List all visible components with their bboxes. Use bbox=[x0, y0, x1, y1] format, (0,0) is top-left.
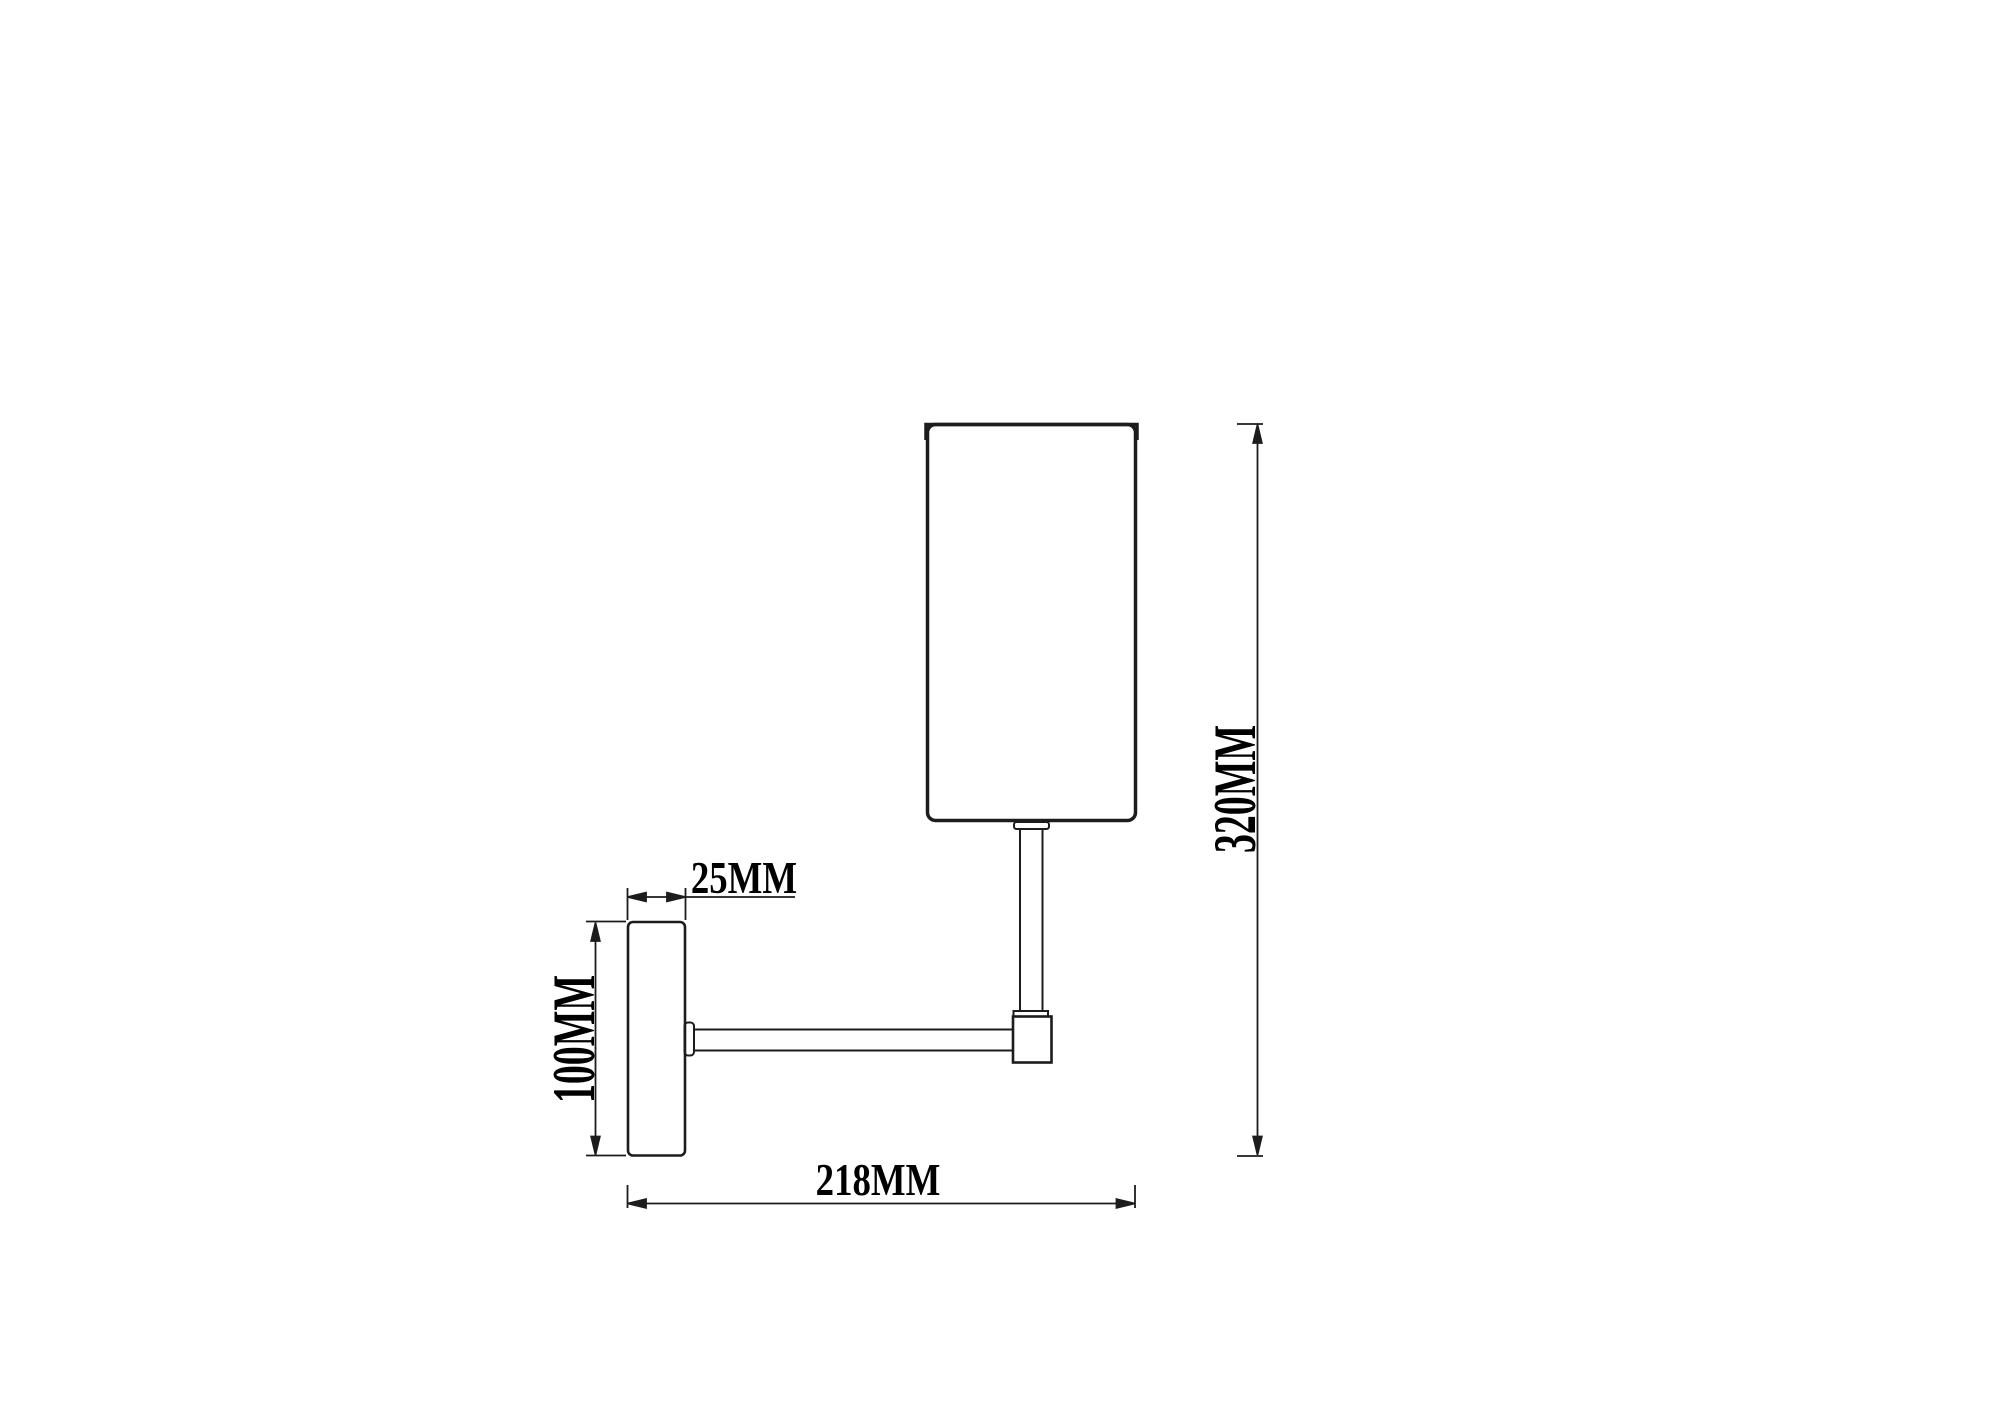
label-total-height: 320MM bbox=[1204, 727, 1266, 853]
label-plate-height: 100MM bbox=[543, 977, 605, 1103]
lamp-line-drawing bbox=[0, 0, 2000, 1413]
joint-block bbox=[1013, 1017, 1052, 1063]
arrowhead-left bbox=[628, 1199, 646, 1208]
arrowhead-up bbox=[1253, 425, 1262, 443]
wall-plate bbox=[628, 922, 685, 1156]
arrowhead-up bbox=[591, 923, 600, 941]
technical-drawing-canvas: 25MM 100MM 218MM 320MM bbox=[0, 0, 2000, 1413]
socket-strip bbox=[1014, 822, 1049, 829]
lampshade-outline bbox=[928, 425, 1136, 821]
arrowhead-down bbox=[1253, 1137, 1262, 1155]
label-total-width: 218MM bbox=[798, 1158, 958, 1202]
lampshade-top-edge bbox=[926, 425, 1137, 441]
label-plate-depth: 25MM bbox=[664, 856, 824, 900]
arrowhead-left bbox=[628, 893, 646, 902]
arrowhead-down bbox=[591, 1137, 600, 1155]
arrowhead-right bbox=[1117, 1199, 1135, 1208]
